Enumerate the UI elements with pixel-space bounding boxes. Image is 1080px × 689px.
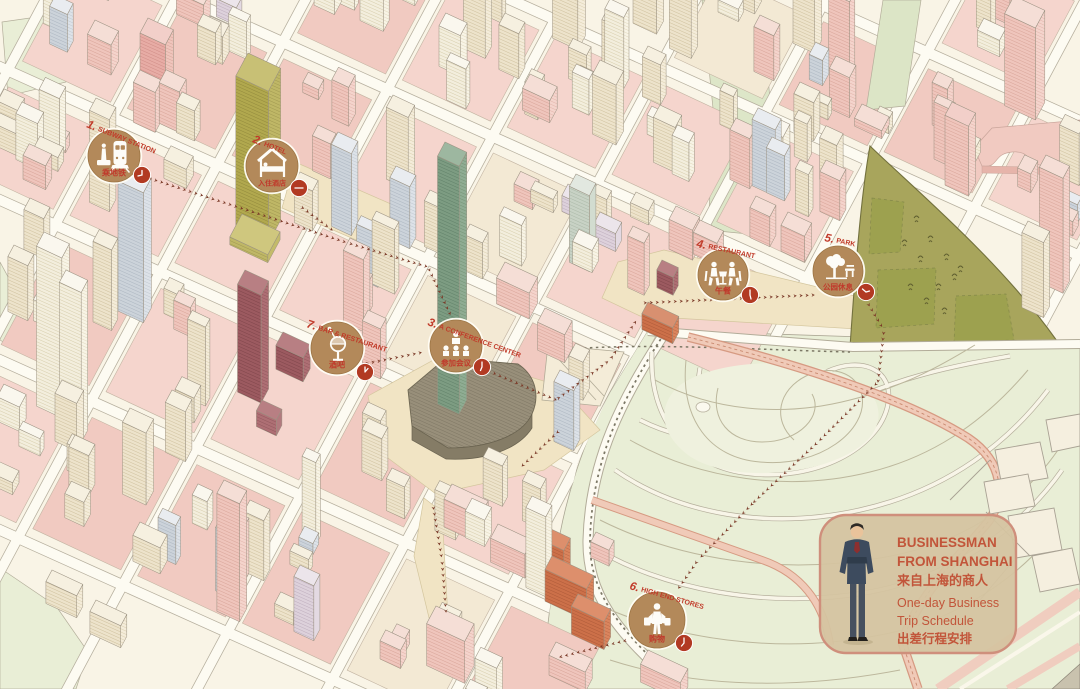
svg-text:公园休息: 公园休息: [823, 282, 853, 292]
svg-text:出差行程安排: 出差行程安排: [897, 631, 973, 646]
svg-text:酒吧: 酒吧: [329, 360, 345, 370]
svg-text:参加会议: 参加会议: [441, 358, 471, 368]
svg-text:入住酒店: 入住酒店: [257, 179, 286, 188]
svg-text:购物: 购物: [649, 634, 665, 644]
svg-text:One-day Business: One-day Business: [897, 596, 999, 610]
svg-text:BUSINESSMAN: BUSINESSMAN: [897, 535, 997, 550]
svg-text:FROM SHANGHAI: FROM SHANGHAI: [897, 554, 1013, 569]
svg-text:来自上海的商人: 来自上海的商人: [896, 573, 989, 588]
svg-text:Trip Schedule: Trip Schedule: [897, 614, 974, 628]
svg-text:乘地铁: 乘地铁: [101, 168, 126, 178]
svg-text:午餐: 午餐: [715, 286, 732, 296]
